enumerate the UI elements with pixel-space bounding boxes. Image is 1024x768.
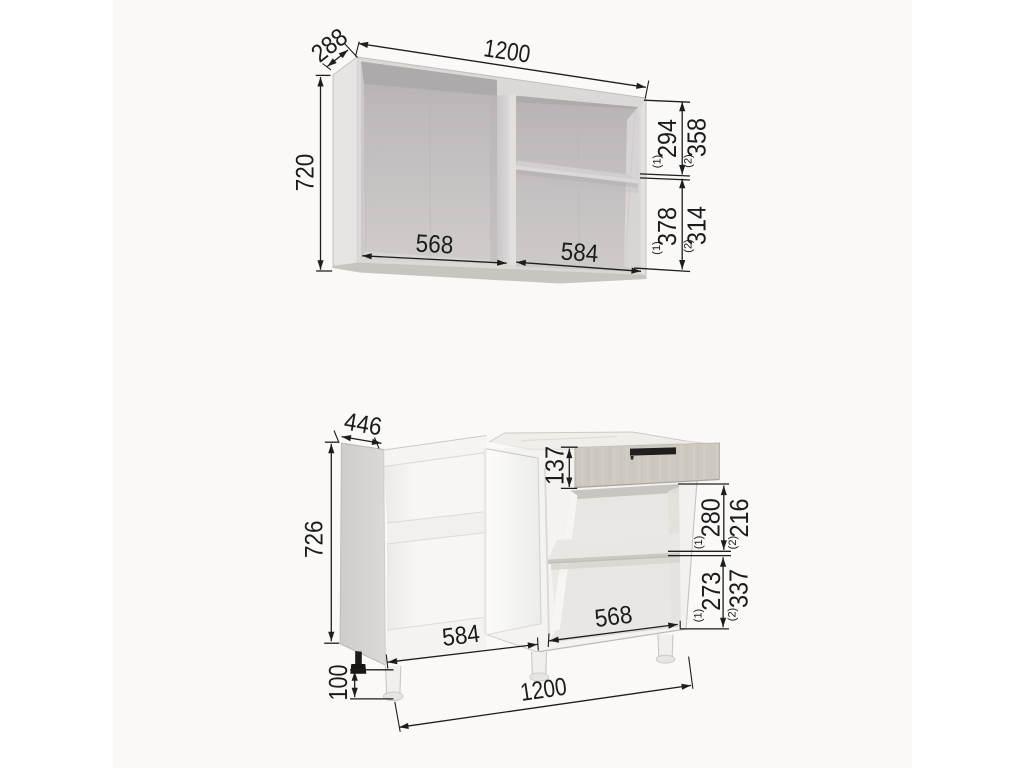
svg-text:584: 584 xyxy=(441,620,482,652)
svg-text:337: 337 xyxy=(724,569,754,608)
svg-text:(1): (1) xyxy=(693,536,705,549)
svg-text:(1): (1) xyxy=(652,155,664,168)
svg-text:(2): (2) xyxy=(683,154,695,167)
svg-text:568: 568 xyxy=(415,230,454,260)
svg-text:(1): (1) xyxy=(693,609,705,622)
svg-text:273: 273 xyxy=(696,572,726,611)
svg-text:(2): (2) xyxy=(727,536,739,549)
svg-text:(2): (2) xyxy=(683,239,695,252)
svg-text:568: 568 xyxy=(593,601,634,634)
svg-text:314: 314 xyxy=(682,206,712,245)
svg-text:100: 100 xyxy=(323,665,353,701)
svg-text:(2): (2) xyxy=(727,608,739,621)
svg-text:294: 294 xyxy=(652,119,682,158)
svg-text:378: 378 xyxy=(652,207,682,246)
svg-text:216: 216 xyxy=(724,499,754,538)
svg-text:720: 720 xyxy=(292,154,320,192)
svg-text:726: 726 xyxy=(301,521,329,559)
svg-text:584: 584 xyxy=(560,238,600,269)
svg-text:(1): (1) xyxy=(651,241,663,254)
svg-text:280: 280 xyxy=(696,498,726,537)
svg-text:358: 358 xyxy=(682,118,712,157)
svg-text:137: 137 xyxy=(540,446,570,485)
